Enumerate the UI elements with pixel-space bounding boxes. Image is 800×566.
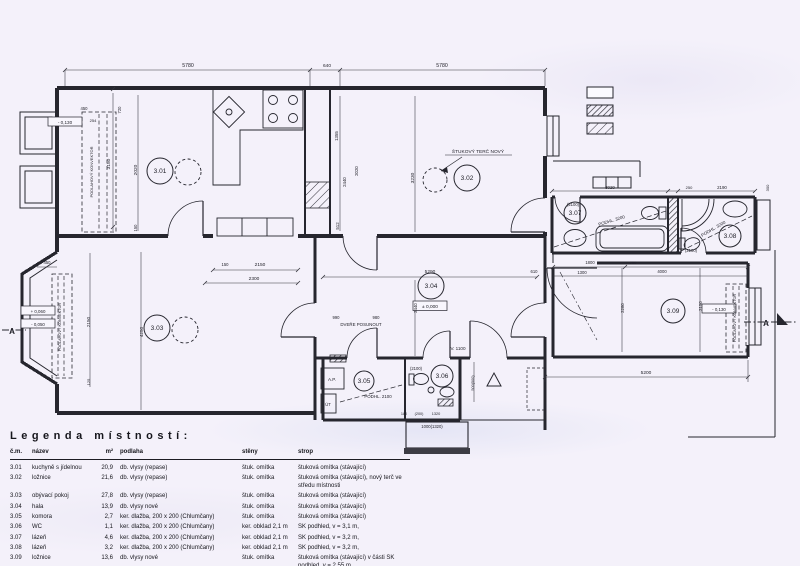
legend-cell: ker. dlažba, 200 x 200 (Chlumčany) bbox=[120, 534, 242, 544]
dim-label: 180 bbox=[401, 412, 407, 416]
legend-cell: štuk. omítka bbox=[242, 460, 298, 475]
kitchen-sink-drain bbox=[226, 109, 232, 115]
legend-cell: 3.08 bbox=[10, 544, 32, 554]
annotation-label: PODHL. 2100 bbox=[364, 394, 392, 399]
legend-cell: SK podhled, v = 3,2 m, bbox=[298, 534, 410, 544]
table-row: 3.07lázeň4,6ker. dlažba, 200 x 200 (Chlu… bbox=[10, 534, 410, 544]
dim-label: 980 bbox=[373, 315, 381, 320]
dim-label: 1300 bbox=[577, 270, 587, 275]
dashed-layer bbox=[2, 112, 796, 410]
legend-cell: štuková omítka (stávající) bbox=[298, 513, 410, 523]
dim-label: 250 bbox=[630, 260, 637, 265]
legend-cell: kuchyně s jídelnou bbox=[32, 460, 96, 475]
legend-cell: ker. obklad 2,1 m bbox=[242, 534, 298, 544]
legend-col-header: název bbox=[32, 449, 96, 460]
dim-label: 2300 bbox=[249, 276, 260, 282]
dim-label: 2150 bbox=[698, 301, 703, 311]
balcony-edge bbox=[404, 448, 470, 454]
legend-cell: ker. dlažba, 200 x 200 (Chlumčany) bbox=[120, 523, 242, 533]
dim-label: 3150 bbox=[106, 158, 112, 169]
dim-label: 640 bbox=[323, 63, 331, 69]
target-leader-line bbox=[441, 157, 462, 171]
legend-cell: 3.07 bbox=[10, 534, 32, 544]
dim-label: 512 bbox=[335, 222, 340, 230]
annotation-label: ÚT bbox=[325, 402, 331, 407]
podhled-dashed-line bbox=[681, 216, 752, 251]
dim-label: 5780 bbox=[182, 63, 194, 69]
window bbox=[20, 166, 57, 208]
dim-label: 5200 bbox=[641, 370, 652, 376]
toilet bbox=[642, 207, 659, 220]
legend-cell: štuková omítka (stávající) bbox=[298, 492, 410, 502]
wc-basin bbox=[440, 387, 454, 397]
bathtub-inner bbox=[600, 229, 664, 248]
dim-label: 250 bbox=[686, 185, 693, 190]
dim-label: 1000(1320) bbox=[421, 424, 443, 429]
legend-cell: hala bbox=[32, 503, 96, 513]
toilet-tank bbox=[659, 207, 666, 219]
dim-label: (2100) bbox=[410, 366, 423, 371]
annotation-label: DVEŘE POSUNOUT bbox=[340, 322, 382, 327]
legend-cell: 13,9 bbox=[96, 503, 120, 513]
burner bbox=[289, 96, 298, 105]
diagonal-reference bbox=[560, 272, 597, 340]
dim-label: 254 bbox=[90, 118, 97, 123]
material-swatches bbox=[587, 87, 613, 134]
room-number: 3.05 bbox=[358, 378, 371, 385]
annotation-label: V. 1100 bbox=[450, 346, 466, 351]
legend-cell: štuk. omítka bbox=[242, 503, 298, 513]
dim-label: 4250 bbox=[139, 326, 144, 337]
legend-cell: ker. dlažba, 200 x 200 (Chlumčany) bbox=[120, 544, 242, 554]
kitchen-counter bbox=[213, 90, 303, 185]
section-mark-label: A bbox=[9, 327, 15, 336]
annotation-label: PODLAHOVÝ KONVEKTOR bbox=[89, 146, 94, 197]
room-number: 3.06 bbox=[436, 373, 449, 380]
legend-cell: SK podhled, v = 3,1 m, bbox=[298, 523, 410, 533]
shaft-dashed bbox=[527, 368, 545, 410]
dim-label: 2440 bbox=[342, 177, 347, 187]
legend-header-row: č.m.názevm²podlahastěnystrop bbox=[10, 449, 410, 460]
stove bbox=[263, 90, 303, 128]
legend-title: Legenda místností: bbox=[10, 430, 382, 442]
room-number: 3.03 bbox=[151, 325, 164, 332]
room-number: 3.08 bbox=[724, 233, 737, 240]
section-mark-label: A bbox=[763, 319, 769, 328]
scanned-floor-plan-page: 3.013.023.033.043.053.063.073.083.09 578… bbox=[0, 0, 800, 566]
legend-cell: 3.01 bbox=[10, 460, 32, 475]
legend-cell: štuková omítka (stávající) v části SK po… bbox=[298, 554, 410, 566]
dim-label: 500(500) bbox=[471, 375, 475, 391]
annotation-label: PODLAHOVÝ KONVEKTOR bbox=[733, 294, 737, 343]
dim-label: 3230 bbox=[410, 172, 416, 183]
legend-cell: štuková omítka (stávající) bbox=[298, 503, 410, 513]
dim-label: 5290 bbox=[425, 269, 436, 275]
dim-label: 2440 bbox=[413, 303, 418, 313]
ceiling-target-dashed bbox=[172, 317, 198, 343]
level-mark-label: + 0,060 bbox=[31, 309, 46, 314]
burner bbox=[269, 96, 278, 105]
legend-cell: db. vlysy nové bbox=[120, 503, 242, 513]
legend-table: č.m.názevm²podlahastěnystrop 3.01kuchyně… bbox=[10, 449, 410, 566]
legend-cell: 4,6 bbox=[96, 534, 120, 544]
level-boxes bbox=[21, 117, 736, 328]
level-mark-label: ± 0,000 bbox=[422, 304, 438, 310]
table-row: 3.08lázeň3,2ker. dlažba, 200 x 200 (Chlu… bbox=[10, 544, 410, 554]
level-mark-label: - 0,130 bbox=[712, 307, 726, 312]
legend-col-header: strop bbox=[298, 449, 410, 460]
dim-label: 4000 bbox=[657, 269, 667, 274]
legend-rows: 3.01kuchyně s jídelnou20,9db. vlysy (rep… bbox=[10, 460, 410, 566]
section-marker-triangle bbox=[777, 313, 788, 325]
walls-layer bbox=[22, 88, 775, 437]
window bbox=[25, 171, 52, 203]
dim-label: 5780 bbox=[436, 63, 448, 69]
legend-cell: štuková omítka (stávající) bbox=[298, 460, 410, 475]
building-edge bbox=[688, 250, 775, 437]
dim-label: 720 bbox=[117, 106, 122, 114]
plan-texts-layer: 57806405780- 0,13045025472031502020150PO… bbox=[9, 63, 770, 429]
legend-cell: SK podhled, v = 3,2 m, bbox=[298, 544, 410, 554]
floor-drain bbox=[428, 387, 434, 393]
legend-cell: WC bbox=[32, 523, 96, 533]
legend-cell: ložnice bbox=[32, 554, 96, 566]
room-number: 3.01 bbox=[154, 168, 167, 175]
legend-cell: db. vlysy (repase) bbox=[120, 492, 242, 502]
legend-cell: 3.09 bbox=[10, 554, 32, 566]
legend-cell: 3.02 bbox=[10, 474, 32, 492]
legend-col-header: m² bbox=[96, 449, 120, 460]
table-row: 3.01kuchyně s jídelnou20,9db. vlysy (rep… bbox=[10, 460, 410, 475]
burner bbox=[289, 114, 298, 123]
dim-label: 150 bbox=[133, 224, 138, 232]
annotation-label: A.P. bbox=[328, 377, 336, 382]
living-room-walls bbox=[57, 236, 315, 413]
dim-label: 610 bbox=[531, 269, 539, 274]
dim-label: 990 bbox=[333, 315, 341, 320]
exit-triangle-marker bbox=[487, 373, 501, 386]
legend-cell: 3.04 bbox=[10, 503, 32, 513]
legend-cell: obývací pokoj bbox=[32, 492, 96, 502]
legend-cell: 13,6 bbox=[96, 554, 120, 566]
room-number: 3.04 bbox=[425, 283, 438, 290]
kitchen-bench-dividers bbox=[242, 218, 267, 236]
room-legend: Legenda místností: č.m.názevm²podlahastě… bbox=[10, 430, 382, 566]
bath-shaft bbox=[668, 197, 678, 253]
legend-cell: 20,9 bbox=[96, 460, 120, 475]
legend-cell: lázeň bbox=[32, 544, 96, 554]
legend-cell: 3,2 bbox=[96, 544, 120, 554]
dim-label: 1355 bbox=[334, 131, 339, 141]
legend-cell: komora bbox=[32, 513, 96, 523]
dim-label: 450 bbox=[81, 106, 89, 111]
legend-cell: 27,8 bbox=[96, 492, 120, 502]
dim-label: 2150 bbox=[255, 262, 266, 268]
kitchen-bench bbox=[217, 218, 293, 236]
level-mark-label: - 0,130 bbox=[58, 120, 73, 125]
legend-cell: štuk. omítka bbox=[242, 513, 298, 523]
annotation-label: ŠTUKOVÝ TERČ NOVÝ bbox=[452, 148, 505, 155]
dim-label: 3020 bbox=[605, 185, 615, 190]
staircase-door bbox=[757, 200, 770, 250]
legend-cell: štuk. omítka bbox=[242, 492, 298, 502]
fixtures-layer bbox=[213, 90, 747, 454]
legend-cell: 3.06 bbox=[10, 523, 32, 533]
shower-corner bbox=[682, 199, 714, 231]
legend-cell: štuk. omítka bbox=[242, 474, 298, 492]
kitchen-sink bbox=[213, 96, 244, 127]
legend-col-header: stěny bbox=[242, 449, 298, 460]
legend-cell: ker. obklad 2,1 m bbox=[242, 544, 298, 554]
dim-label: 300 bbox=[765, 184, 770, 191]
chimney-shaft bbox=[305, 182, 330, 208]
swatch-hatch-dense bbox=[587, 105, 613, 116]
wall-pier bbox=[438, 399, 453, 406]
dim-label: (200) bbox=[415, 412, 425, 416]
wc-toilet bbox=[414, 374, 429, 385]
room-number: 3.07 bbox=[569, 210, 582, 217]
swatch-hatch-light bbox=[587, 123, 613, 134]
room-number: 3.02 bbox=[461, 175, 474, 182]
bay-glazing bbox=[30, 260, 57, 376]
legend-col-header: č.m. bbox=[10, 449, 32, 460]
dim-label: 150 bbox=[222, 262, 230, 267]
legend-cell: lázeň bbox=[32, 534, 96, 544]
shower-corner-inner bbox=[682, 199, 709, 226]
table-row: 3.04hala13,9db. vlysy novéštuk. omítkašt… bbox=[10, 503, 410, 513]
legend-cell: 21,6 bbox=[96, 474, 120, 492]
outer-walls bbox=[57, 88, 545, 236]
annotation-label: PODLAHOVÝ KONVEKTOR bbox=[58, 303, 62, 352]
level-mark-label: - 0,050 bbox=[31, 322, 45, 327]
legend-cell: 1,1 bbox=[96, 523, 120, 533]
table-row: 3.09ložnice13,6db. vlysy novéštuk. omítk… bbox=[10, 554, 410, 566]
legend-cell: db. vlysy nové bbox=[120, 554, 242, 566]
burner bbox=[269, 114, 278, 123]
dim-label: 2020 bbox=[354, 166, 359, 176]
room-number: 3.09 bbox=[667, 308, 680, 315]
dim-label: 2280 bbox=[620, 303, 625, 313]
dim-label: 450 bbox=[44, 260, 52, 265]
legend-cell: ker. dlažba, 200 x 200 (Chlumčany) bbox=[120, 513, 242, 523]
table-row: 3.05komora2,7ker. dlažba, 200 x 200 (Chl… bbox=[10, 513, 410, 523]
dim-label: (2100) bbox=[685, 248, 698, 253]
swatch-existing-plain bbox=[587, 87, 613, 98]
legend-cell: db. vlysy (repase) bbox=[120, 474, 242, 492]
table-row: 3.02ložnice21,6db. vlysy (repase)štuk. o… bbox=[10, 474, 410, 492]
dim-label: (2100) bbox=[567, 202, 580, 207]
dim-label: 2020 bbox=[133, 164, 139, 175]
dim-label: 2190 bbox=[717, 185, 727, 190]
legend-cell: 3.03 bbox=[10, 492, 32, 502]
floor-convector-tracks bbox=[99, 114, 107, 230]
table-row: 3.06WC1,1ker. dlažba, 200 x 200 (Chlumča… bbox=[10, 523, 410, 533]
windows-layer bbox=[20, 112, 770, 376]
table-row: 3.03obývací pokoj27,8db. vlysy (repase)š… bbox=[10, 492, 410, 502]
dim-label: 2150 bbox=[86, 316, 91, 327]
partition-301-302 bbox=[305, 88, 330, 236]
legend-cell: 3.05 bbox=[10, 513, 32, 523]
legend-cell: ložnice bbox=[32, 474, 96, 492]
legend-cell: štuková omítka (stávající), nový terč ve… bbox=[298, 474, 410, 492]
washbasin bbox=[723, 201, 747, 217]
legend-col-header: podlaha bbox=[120, 449, 242, 460]
dim-label: 1800 bbox=[585, 260, 595, 265]
legend-cell: ker. obklad 2,1 m bbox=[242, 523, 298, 533]
dimension-ticks bbox=[63, 68, 757, 379]
legend-cell: 2,7 bbox=[96, 513, 120, 523]
legend-cell: db. vlysy (repase) bbox=[120, 460, 242, 475]
dim-label: 125 bbox=[86, 378, 91, 385]
dim-label: 1320 bbox=[432, 412, 440, 416]
ceiling-target-dashed bbox=[175, 159, 201, 185]
legend-cell: štuk. omítka bbox=[242, 554, 298, 566]
